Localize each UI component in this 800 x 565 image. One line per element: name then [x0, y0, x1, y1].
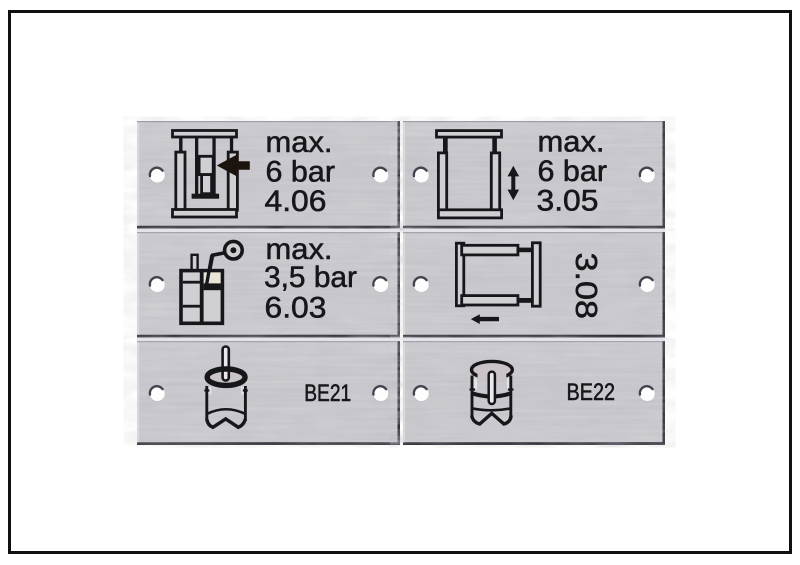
svg-text:6 bar: 6 bar: [538, 155, 608, 188]
svg-text:BE21: BE21: [304, 380, 351, 407]
svg-text:4.06: 4.06: [265, 185, 327, 218]
svg-text:max.: max.: [266, 126, 333, 159]
svg-text:3.05: 3.05: [537, 185, 599, 218]
svg-text:BE22: BE22: [567, 379, 616, 406]
svg-text:6 bar: 6 bar: [266, 156, 336, 189]
svg-text:3.08: 3.08: [569, 253, 602, 320]
svg-text:6.03: 6.03: [265, 292, 327, 325]
svg-text:max.: max.: [538, 126, 605, 159]
svg-text:3,5 bar: 3,5 bar: [264, 261, 357, 294]
